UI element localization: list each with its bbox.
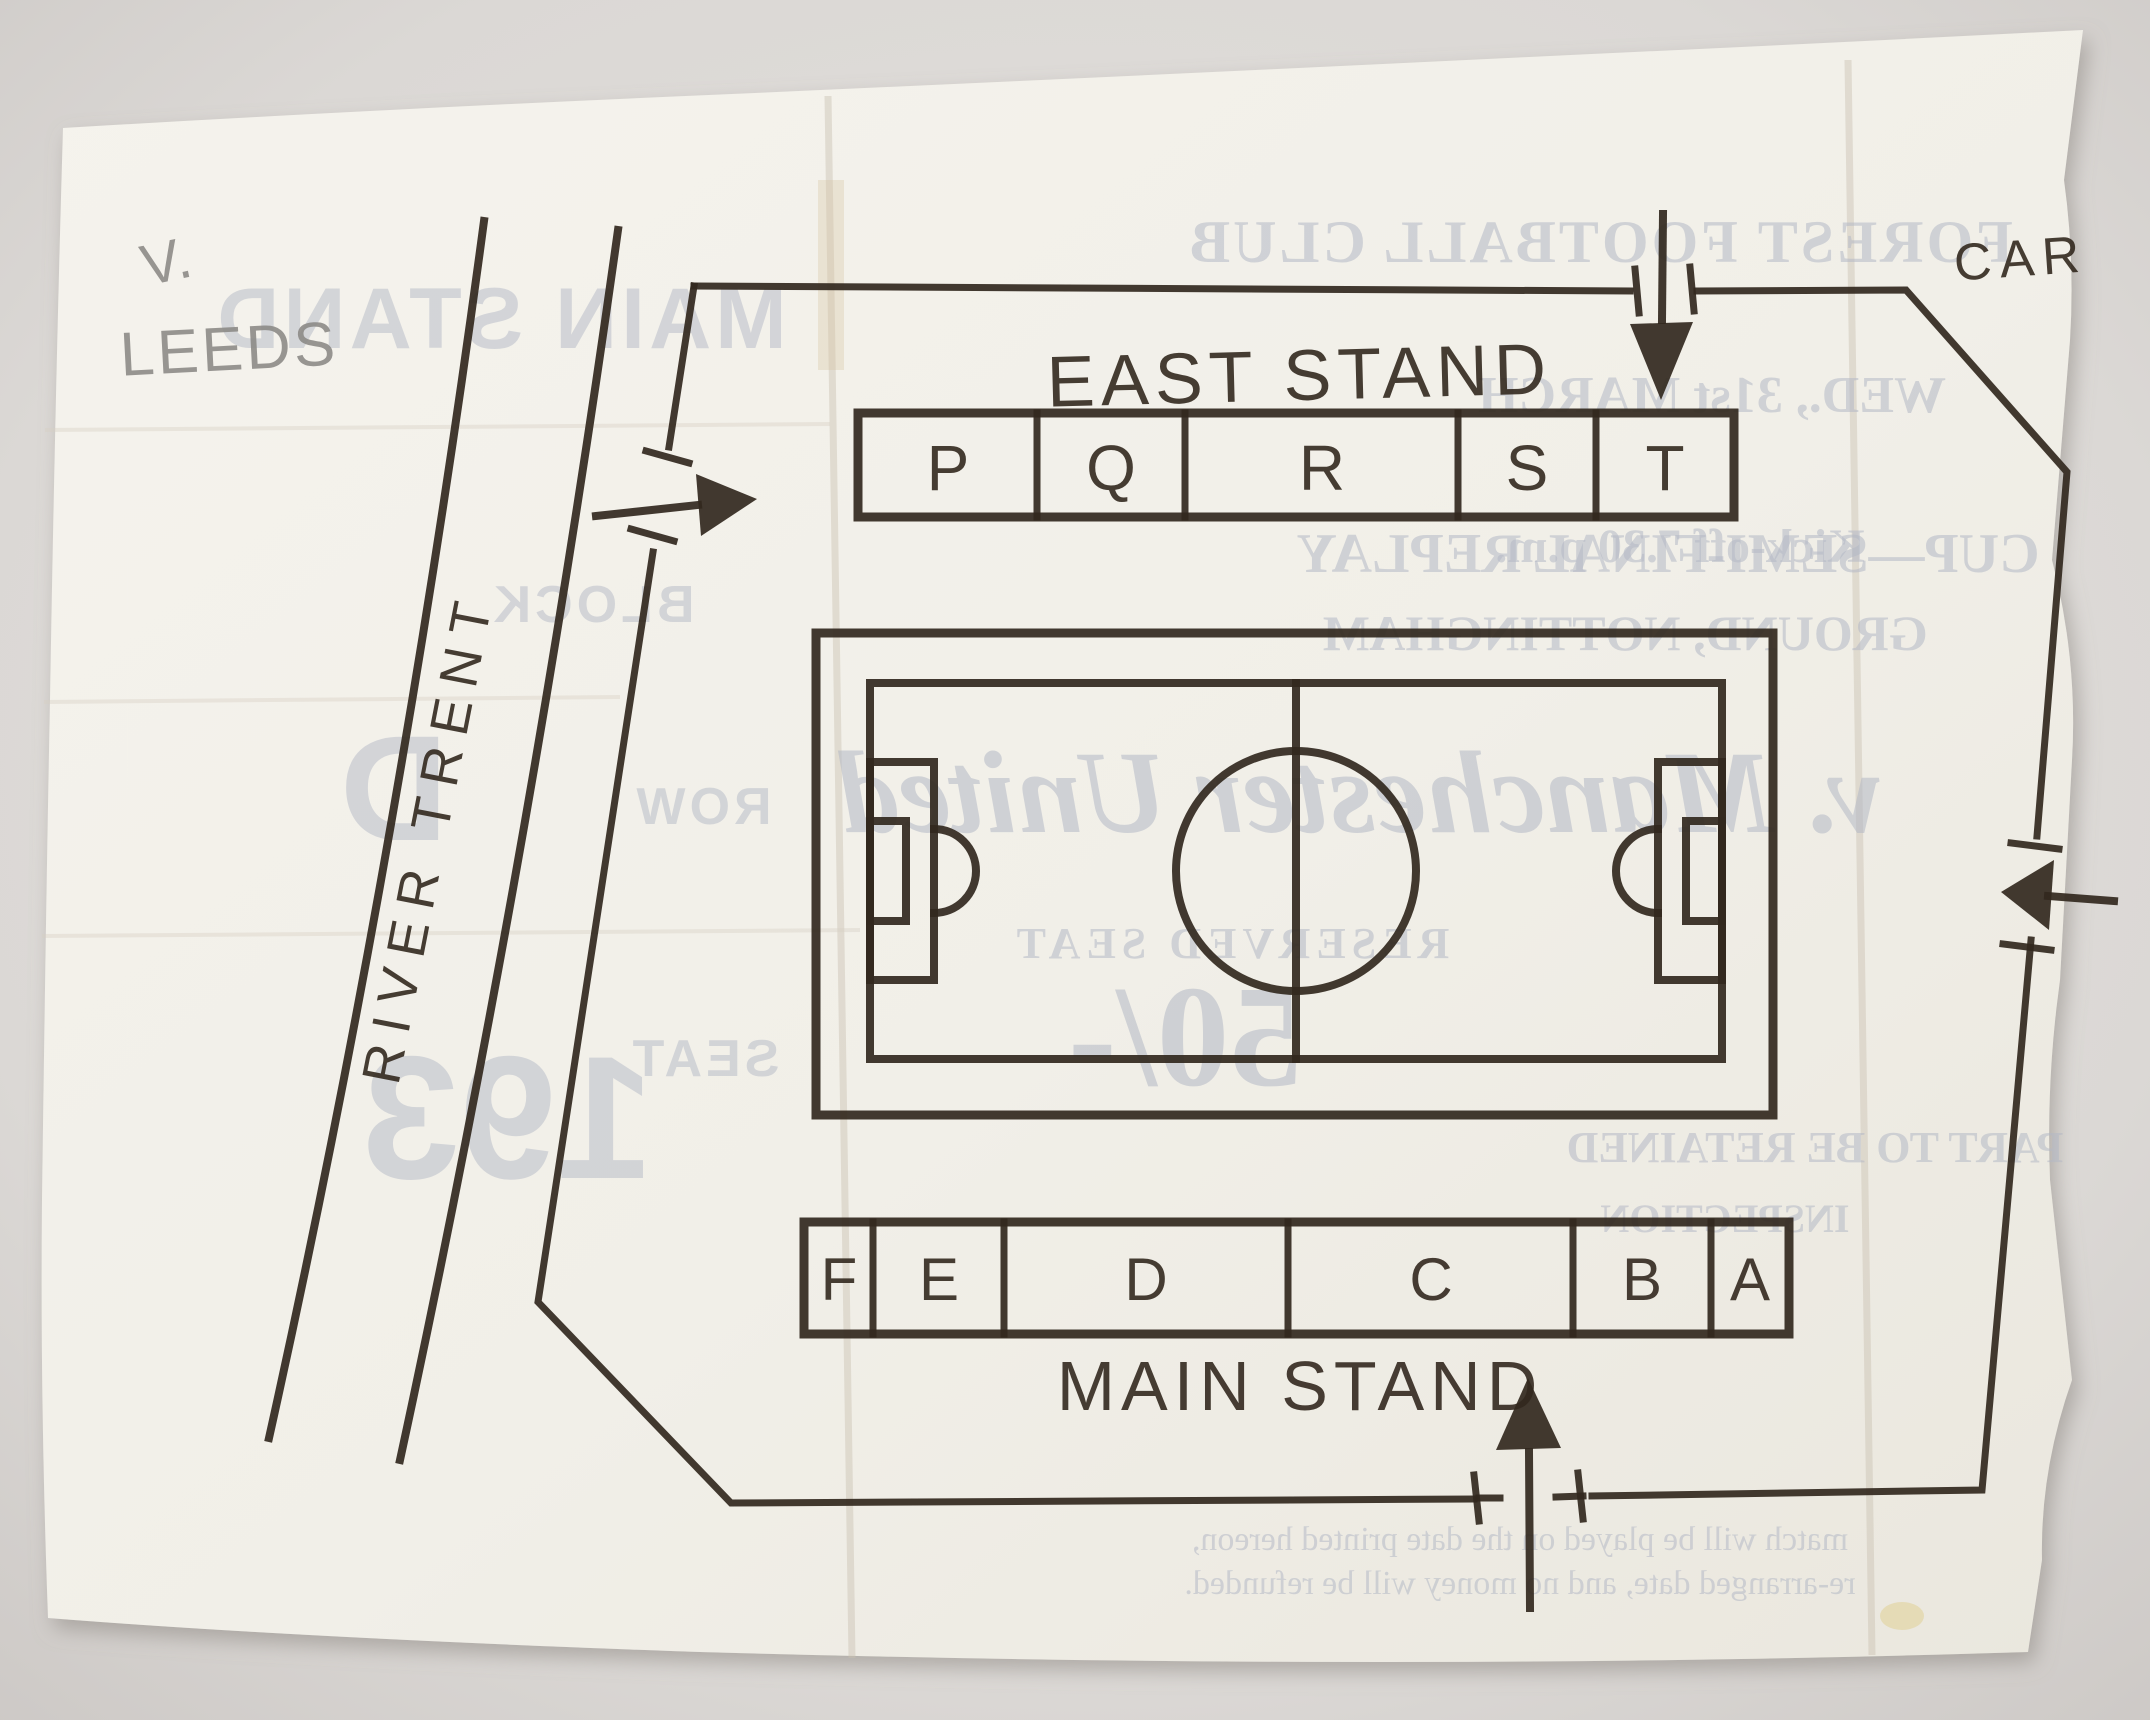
ghost-fineprint-line1: match will be played on the date printed…: [1192, 1521, 1848, 1558]
arrow-shaft: [1529, 1452, 1530, 1608]
section-letter-d: D: [1124, 1246, 1167, 1313]
ghost-club-name: FOREST FOOTBALL CLUB: [1187, 209, 2013, 275]
section-letter-a: A: [1730, 1246, 1770, 1313]
section-letter-p: P: [927, 432, 970, 504]
paper-stain: [1880, 1602, 1924, 1630]
ghost-block-label: BLOCK: [490, 576, 695, 634]
section-letter-f: F: [821, 1246, 858, 1313]
handwritten-opponent: LEEDS: [118, 309, 340, 389]
boundary-top: [694, 286, 1630, 291]
fold-stain: [818, 180, 844, 370]
ghost-competition-line: CUP—SEMI-FINAL REPLAY: [1296, 523, 2039, 585]
section-letter-t: T: [1645, 432, 1684, 504]
ticket-photo: MAIN STAND FOREST FOOTBALL CLUB WED., 31…: [0, 0, 2150, 1720]
car-park-label: CAR: [1952, 225, 2090, 292]
section-letter-c: C: [1409, 1246, 1452, 1313]
ghost-row-label: ROW: [632, 778, 771, 836]
ghost-price: 50/-: [1068, 957, 1302, 1117]
arrow-shaft: [1662, 214, 1663, 320]
arrow-shaft: [2048, 896, 2114, 901]
ghost-fineprint-line2: re-arranged date, and no money will be r…: [1184, 1565, 1855, 1602]
section-letter-r: R: [1299, 432, 1345, 504]
ghost-retained: PART TO BE RETAINED: [1567, 1123, 2064, 1172]
section-letter-s: S: [1506, 432, 1549, 504]
section-letter-e: E: [919, 1246, 959, 1313]
section-letter-q: Q: [1086, 432, 1136, 504]
main-stand-label: MAIN STAND: [1057, 1347, 1544, 1425]
section-letter-b: B: [1622, 1246, 1662, 1313]
ticket-photo-canvas: MAIN STAND FOREST FOOTBALL CLUB WED., 31…: [0, 0, 2150, 1720]
